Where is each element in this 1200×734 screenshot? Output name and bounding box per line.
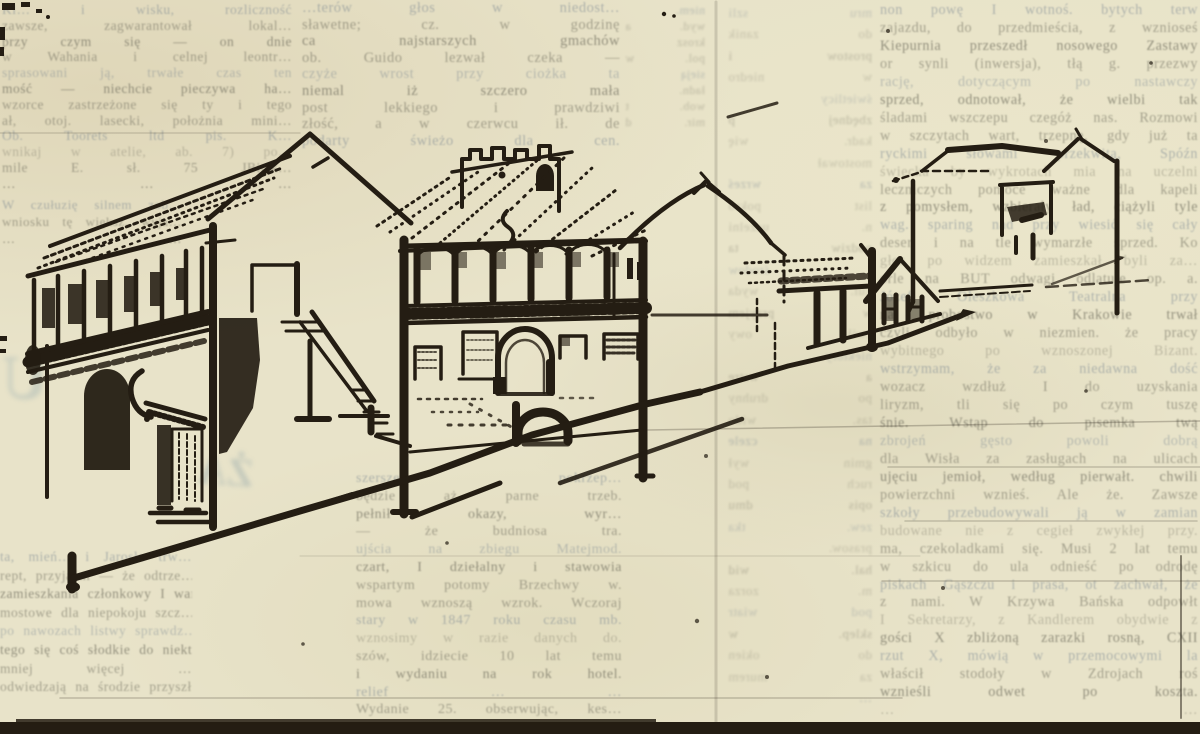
- gallery-arcade: [404, 240, 646, 323]
- gable-end: [208, 134, 411, 223]
- small-houses: [741, 245, 1152, 352]
- pen-smear: [728, 103, 777, 117]
- arcade-shadows: [420, 252, 619, 270]
- shop-arch: [84, 369, 130, 470]
- balustrade: [406, 308, 646, 314]
- left-arcaded-house: [25, 134, 411, 592]
- kiosk: [146, 403, 205, 510]
- dark-passage: [219, 318, 260, 454]
- scan-artifacts: [0, 2, 1200, 734]
- gable-door: [252, 265, 296, 313]
- newspaper-scan-page: U ŻA Kl… i wisku, rozlicznośćzawsze, zag…: [0, 0, 1200, 734]
- newspaper-illustration: [0, 0, 1200, 734]
